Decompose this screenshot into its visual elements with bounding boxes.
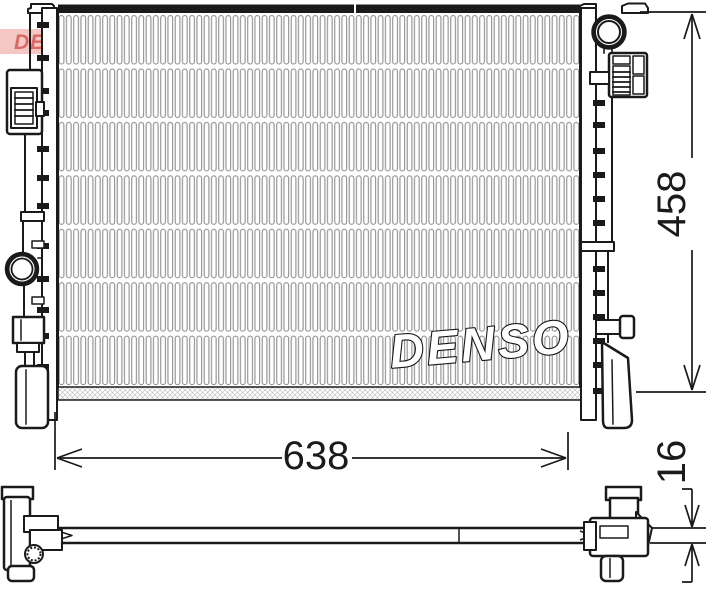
- dimension-depth-16: 16: [650, 440, 706, 582]
- left-bracket-foot: [8, 566, 34, 581]
- left-pin-upper: [32, 241, 44, 248]
- left-lower-bracket: [13, 317, 44, 368]
- arrow-to-bottom: [682, 544, 699, 582]
- left-tank-collar: [21, 212, 44, 221]
- right-connector-block: [590, 48, 647, 97]
- right-tank-collar: [581, 242, 614, 251]
- dimension-width-638: 638: [55, 412, 568, 478]
- left-mount-foot: [16, 366, 48, 428]
- dimension-height-label: 458: [650, 171, 694, 238]
- left-mount-bracket: [2, 487, 62, 581]
- left-pin-lower: [32, 297, 44, 304]
- right-mount-bracket: [584, 487, 652, 581]
- core-top-header: [58, 5, 580, 14]
- right-bracket-foot: [601, 556, 623, 581]
- radiator-drawing: DENSO: [0, 0, 713, 593]
- top-view-bar: [50, 528, 600, 543]
- right-tank-wall: [581, 8, 596, 420]
- right-side-pin: [596, 316, 634, 338]
- dimension-depth-label: 16: [650, 440, 694, 485]
- core-bottom-band: [58, 387, 596, 400]
- right-mount-foot: [602, 342, 632, 428]
- filler-neck: [593, 16, 626, 49]
- arrow-to-top: [682, 489, 699, 527]
- left-inlet-port: [6, 253, 42, 285]
- radiator-front-view: DENSO: [6, 4, 648, 429]
- radiator-top-view: [2, 487, 652, 581]
- connector-stub: [590, 72, 609, 84]
- left-tank: [6, 4, 58, 428]
- left-drain-connector: [7, 70, 44, 134]
- technical-drawing-page: DENSO: [0, 0, 713, 593]
- right-tank: [580, 4, 648, 429]
- header-notch: [354, 5, 356, 14]
- dimension-width-label: 638: [283, 434, 350, 478]
